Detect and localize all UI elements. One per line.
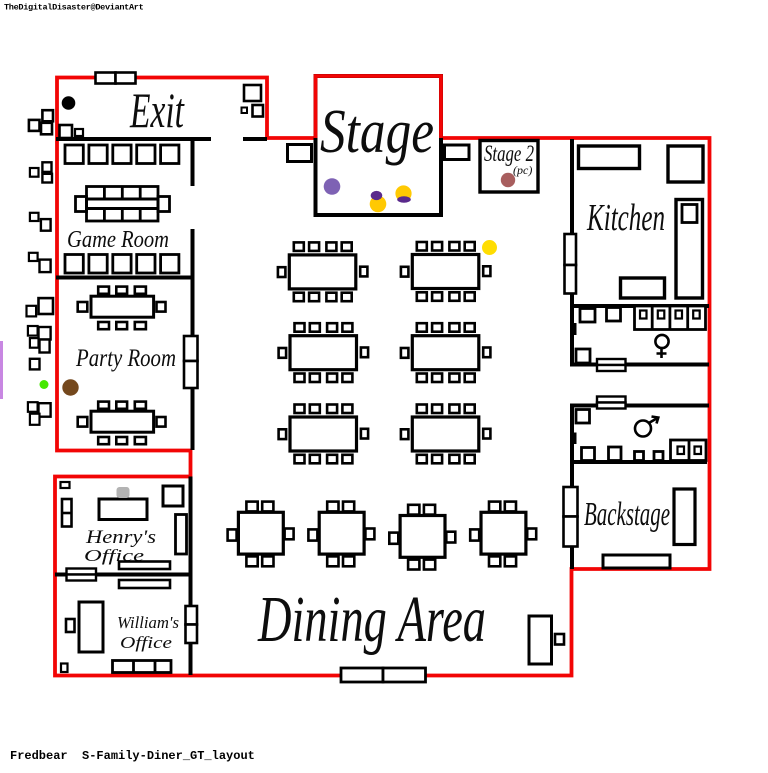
svg-text:Dining Area: Dining Area bbox=[257, 583, 486, 656]
svg-text:Stage: Stage bbox=[320, 98, 434, 166]
svg-text:Backstage: Backstage bbox=[584, 496, 670, 533]
svg-text:Henry's: Henry's bbox=[85, 527, 156, 548]
svg-text:Party Room: Party Room bbox=[75, 345, 176, 372]
svg-text:William's: William's bbox=[117, 613, 179, 632]
svg-text:(pc): (pc) bbox=[513, 163, 532, 177]
svg-text:Fredbear S-Family-Diner_GT_la: Fredbear S-Family-Diner_GT_layout bbox=[10, 749, 255, 763]
svg-text:Office: Office bbox=[120, 633, 173, 652]
svg-text:Game Room: Game Room bbox=[67, 227, 169, 253]
svg-text:TheDigitalDisaster@DeviantArt: TheDigitalDisaster@DeviantArt bbox=[4, 3, 144, 13]
svg-text:Exit: Exit bbox=[129, 82, 184, 138]
svg-text:Kitchen: Kitchen bbox=[586, 197, 665, 239]
